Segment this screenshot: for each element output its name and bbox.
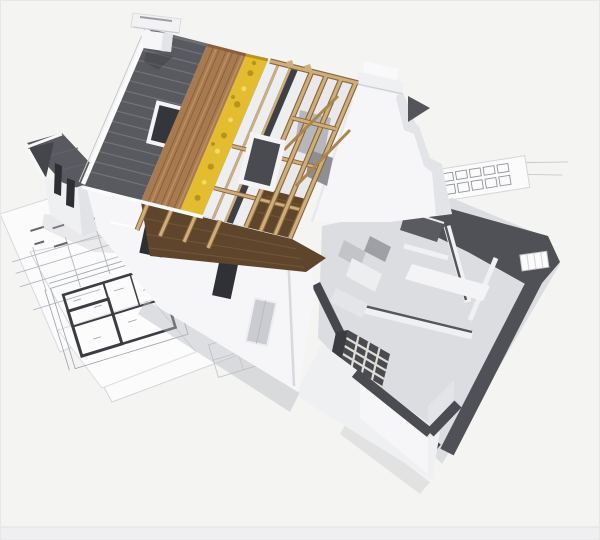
wing-window-slit [66, 178, 75, 208]
wing-window-slit [54, 163, 62, 196]
house-render-scene [0, 0, 600, 540]
render-canvas [0, 0, 600, 540]
chimney-body-shade [161, 33, 173, 52]
radiator [520, 251, 549, 271]
bottom-strip [0, 527, 600, 540]
